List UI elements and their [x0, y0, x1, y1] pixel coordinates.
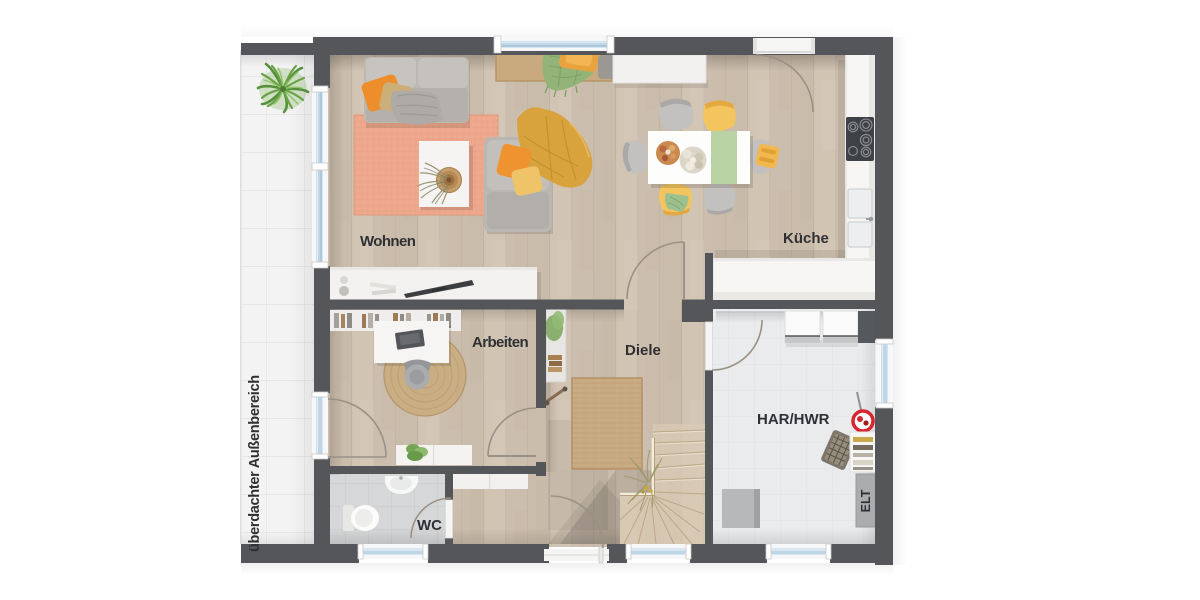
svg-text:ELT: ELT [859, 489, 873, 512]
svg-text:Arbeiten: Arbeiten [472, 334, 528, 351]
svg-text:Diele: Diele [625, 342, 661, 359]
svg-text:HAR/HWR: HAR/HWR [757, 411, 830, 428]
svg-text:überdachter Außenbereich: überdachter Außenbereich [247, 375, 263, 552]
svg-text:WC: WC [417, 517, 442, 534]
svg-text:Wohnen: Wohnen [360, 233, 416, 250]
svg-text:Küche: Küche [783, 230, 829, 247]
